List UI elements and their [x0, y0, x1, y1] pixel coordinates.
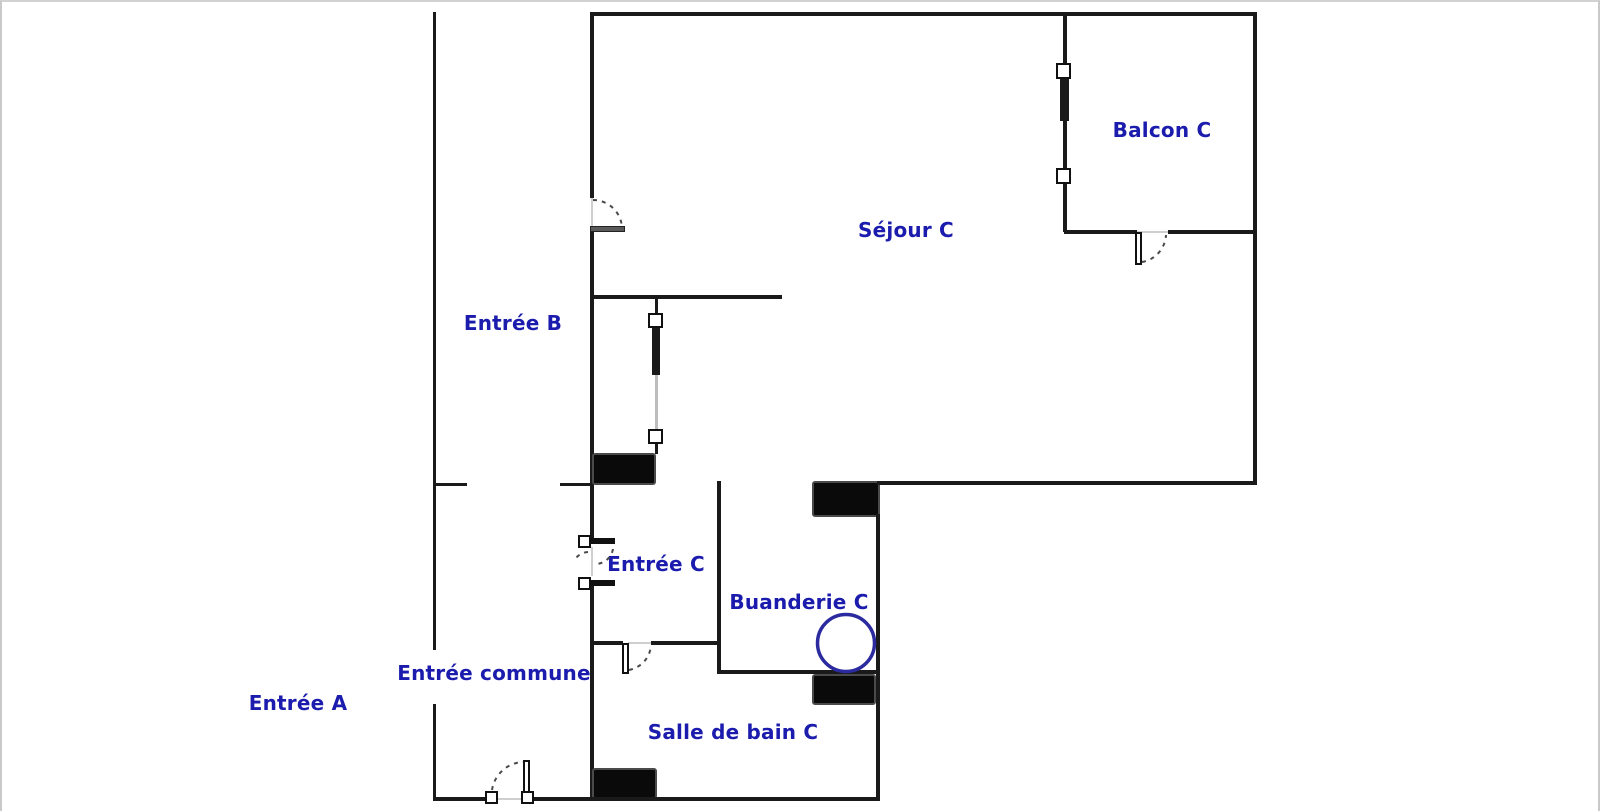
room-label-entree-commune: Entrée commune: [384, 662, 604, 684]
room-label-buanderie-c: Buanderie C: [689, 591, 909, 613]
window-marker-icon: [1056, 168, 1071, 184]
door-jamb-marker: [521, 791, 534, 804]
corridor-divider-stub-left: [433, 483, 467, 486]
load-bearing-wall: [812, 674, 876, 705]
door-swing-icon: [629, 645, 651, 670]
load-bearing-wall: [592, 453, 656, 485]
entrance-door-threshold: [498, 798, 521, 800]
corridor-divider-stub-right: [560, 483, 594, 486]
entree-c-door-frame-top: [591, 538, 615, 544]
room-label-entree-c: Entrée C: [546, 553, 766, 575]
washing-machine-icon: [818, 615, 875, 672]
interior-window-glass-bar: [652, 328, 660, 375]
door-swing-icon: [593, 200, 622, 229]
door-swing-overlay: [2, 2, 1600, 811]
north-wall: [590, 12, 1257, 16]
bathroom-door-leaf: [622, 643, 629, 674]
bathroom-north-wall-east: [651, 641, 719, 645]
buanderie-south-wall: [717, 670, 880, 674]
room-label-entree-b: Entrée B: [403, 312, 623, 334]
door-swing-icon: [1142, 235, 1166, 262]
bathroom-door-threshold: [628, 642, 651, 644]
balcony-window-wall-seg3: [1063, 184, 1067, 232]
buanderie-east-wall: [876, 514, 880, 801]
room-label-balcon-c: Balcon C: [1052, 119, 1272, 141]
balcony-south-wall-east: [1168, 230, 1257, 234]
balcony-door-leaf: [1135, 232, 1142, 265]
south-wall-west: [433, 797, 486, 801]
window-marker-icon: [648, 313, 663, 328]
room-label-entree-a: Entrée A: [188, 692, 408, 714]
south-wall-east: [532, 797, 880, 801]
sejour-interior-wall: [590, 295, 782, 299]
apartment-west-wall-middle: [590, 230, 594, 540]
balcony-window-glass-bar: [1060, 79, 1069, 121]
interior-window-seg2: [655, 375, 658, 430]
sejour-south-wall: [877, 481, 1257, 485]
load-bearing-wall: [592, 768, 657, 799]
entrance-door-leaf: [523, 760, 530, 795]
entree-c-door-frame-bottom: [591, 580, 615, 586]
balcony-south-wall-west: [1064, 230, 1137, 234]
door-jamb-marker: [578, 535, 591, 548]
entree-b-door-leaf: [590, 226, 625, 232]
room-label-sejour-c: Séjour C: [796, 219, 1016, 241]
interior-window-seg3: [655, 444, 658, 454]
load-bearing-wall: [812, 481, 880, 517]
room-label-salle-de-bain-c: Salle de bain C: [623, 721, 843, 743]
door-jamb-marker: [578, 577, 591, 590]
window-marker-icon: [1056, 63, 1071, 79]
bathroom-north-wall-west: [590, 641, 623, 645]
door-jamb-marker: [485, 791, 498, 804]
corridor-west-wall-lower: [433, 704, 436, 799]
window-marker-icon: [648, 429, 663, 444]
balcony-window-wall-seg1: [1063, 12, 1067, 63]
apartment-west-wall-upper: [590, 12, 594, 198]
east-wall: [1253, 12, 1257, 485]
floorplan-canvas: Entrée A Entrée commune Entrée B Entrée …: [0, 0, 1600, 811]
door-swing-icon: [492, 762, 523, 790]
